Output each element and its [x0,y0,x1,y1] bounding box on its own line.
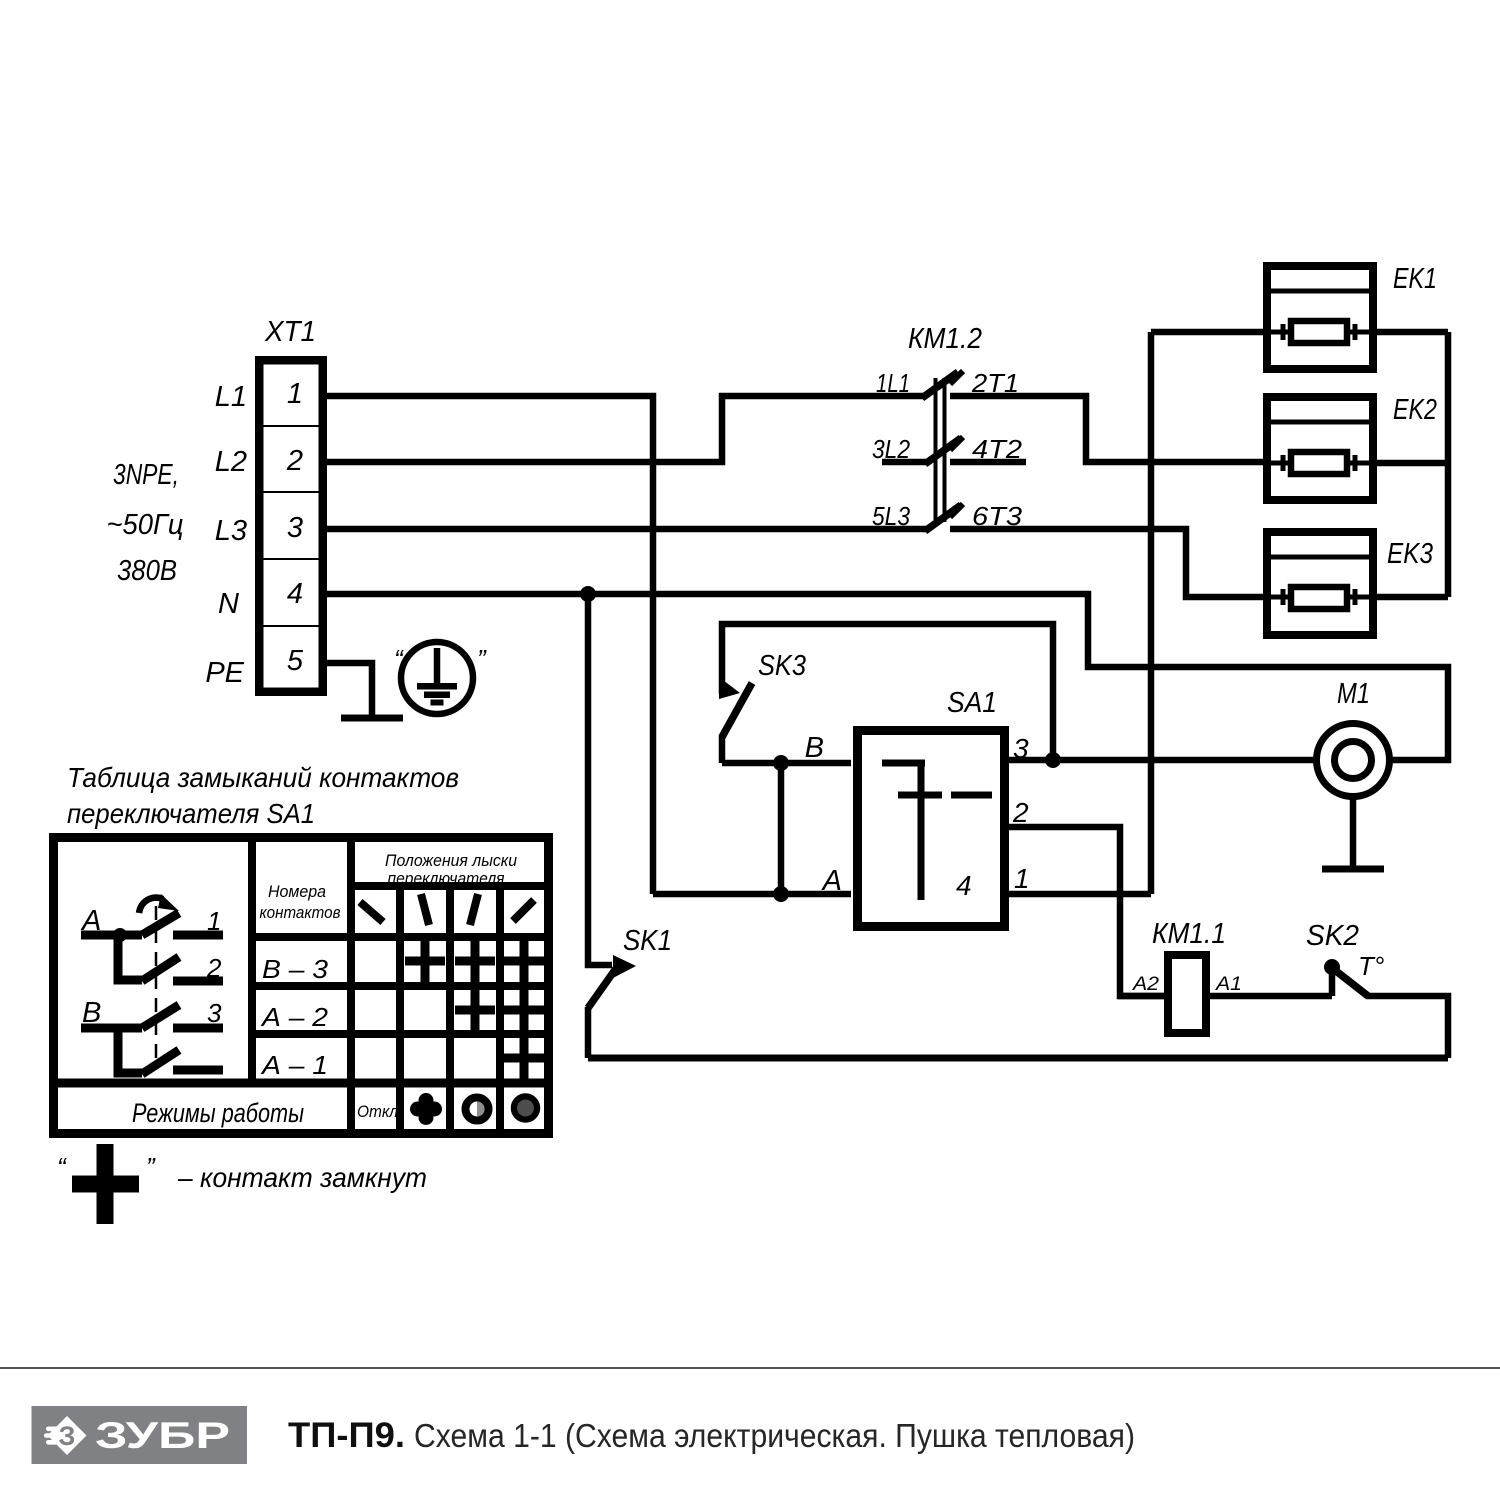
svg-text:1L1: 1L1 [876,368,910,398]
svg-text:EK2: EK2 [1393,394,1437,426]
svg-text:M1: M1 [1337,678,1370,710]
svg-text:”: ” [146,1152,156,1182]
svg-text:2: 2 [1012,797,1029,828]
svg-text:N: N [218,588,239,620]
svg-text:А: А [821,865,842,897]
svg-text:Откл: Откл [357,1102,398,1121]
svg-text:А – 2: А – 2 [260,1002,329,1032]
svg-text:Номера: Номера [268,882,326,901]
svg-text:1: 1 [207,906,221,936]
svg-text:5L3: 5L3 [872,501,910,531]
svg-text:1: 1 [287,378,303,410]
svg-text:3: 3 [207,998,222,1028]
svg-text:“: “ [394,644,404,674]
svg-text:A2: A2 [1132,974,1160,995]
svg-text:ЗУБР: ЗУБР [95,1415,230,1456]
svg-text:EK1: EK1 [1393,263,1437,295]
svg-text:переключателя SA1: переключателя SA1 [67,798,315,829]
svg-text:КМ1.1: КМ1.1 [1152,918,1226,950]
svg-text:~50Гц: ~50Гц [107,509,184,541]
svg-text:переключателя: переключателя [388,869,505,888]
svg-text:380В: 380В [117,555,177,587]
svg-text:4T2: 4T2 [972,434,1023,464]
svg-text:контактов: контактов [260,903,341,922]
svg-text:– контакт замкнут: – контакт замкнут [177,1162,427,1193]
svg-text:L2: L2 [215,446,247,478]
svg-text:Таблица замыканий контактов: Таблица замыканий контактов [67,762,459,793]
svg-text:Положения лыски: Положения лыски [385,851,517,870]
svg-text:A1: A1 [1215,974,1242,995]
svg-text:SA1: SA1 [947,687,997,719]
svg-text:T°: T° [1358,951,1384,981]
svg-text:SK1: SK1 [623,925,672,957]
svg-text:1: 1 [1014,863,1030,894]
svg-text:SK2: SK2 [1306,920,1359,952]
svg-text:3L2: 3L2 [872,434,910,464]
svg-text:“: “ [57,1152,67,1182]
svg-text:3: 3 [1013,733,1029,764]
svg-text:В – 3: В – 3 [262,954,329,984]
svg-text:В: В [805,732,824,764]
svg-text:Схема 1-1 (Схема электрическая: Схема 1-1 (Схема электрическая. Пушка те… [414,1417,1135,1454]
svg-text:ТП-П9.: ТП-П9. [288,1416,405,1455]
svg-text:А – 1: А – 1 [260,1050,328,1080]
svg-text:SK3: SK3 [758,650,806,682]
svg-text:”: ” [477,644,487,674]
svg-text:L1: L1 [215,381,247,413]
svg-text:2: 2 [286,445,303,477]
svg-text:XT1: XT1 [264,316,316,348]
svg-text:З: З [59,1421,76,1451]
svg-text:3: 3 [287,512,303,544]
svg-text:EK3: EK3 [1387,538,1433,570]
svg-text:2T1: 2T1 [971,368,1019,398]
svg-text:3NPE,: 3NPE, [113,459,179,491]
svg-text:Режимы работы: Режимы работы [132,1098,304,1128]
svg-text:L3: L3 [215,515,247,547]
svg-text:КМ1.2: КМ1.2 [908,323,982,355]
svg-text:PE: PE [205,657,244,689]
svg-text:4: 4 [287,578,303,610]
svg-text:5: 5 [287,645,304,677]
svg-text:4: 4 [956,870,972,901]
svg-text:2: 2 [206,953,222,983]
svg-text:6T3: 6T3 [972,501,1023,531]
